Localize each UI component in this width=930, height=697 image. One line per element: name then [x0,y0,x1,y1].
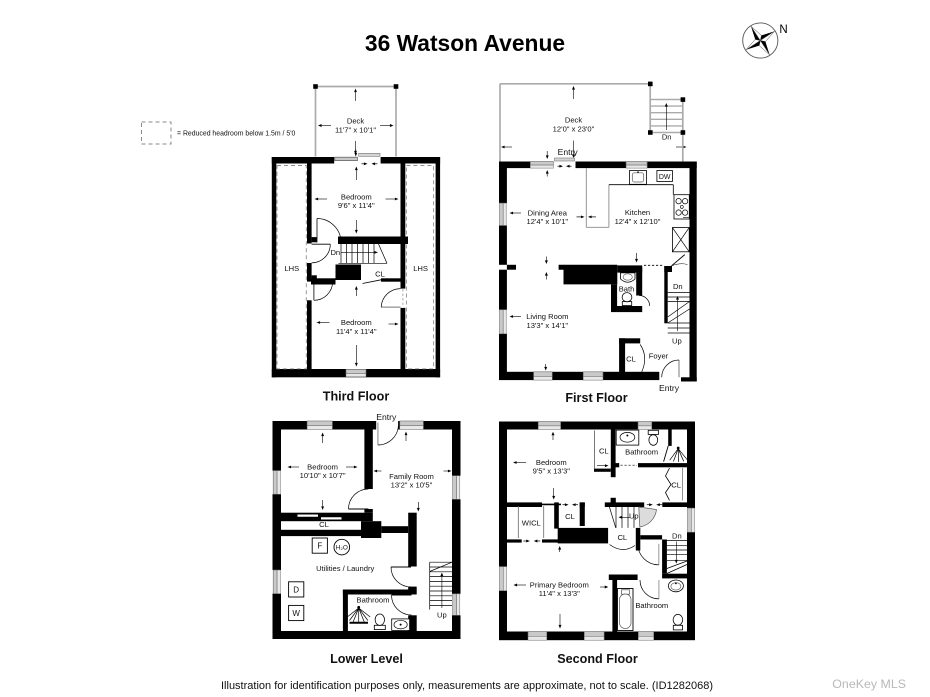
svg-text:DW: DW [659,174,671,181]
svg-text:D: D [293,586,299,595]
svg-text:11'7" x 10'1": 11'7" x 10'1" [335,126,376,135]
svg-text:CL: CL [626,355,636,364]
svg-text:CL: CL [375,270,385,279]
svg-text:N: N [779,24,787,36]
svg-text:H₂O: H₂O [336,545,348,552]
svg-text:Illustration for identificatio: Illustration for identification purposes… [221,680,713,692]
svg-text:Kitchen: Kitchen [625,208,650,217]
svg-text:F: F [317,542,322,551]
svg-text:11'4" x 11'4": 11'4" x 11'4" [336,327,377,336]
svg-text:OneKey MLS: OneKey MLS [832,677,906,691]
svg-text:Third Floor: Third Floor [323,390,390,404]
svg-text:Bath: Bath [619,285,635,294]
svg-text:Second Floor: Second Floor [557,652,638,666]
svg-text:12'4" x 12'10": 12'4" x 12'10" [615,217,661,226]
svg-text:9'5" x 13'3": 9'5" x 13'3" [533,466,571,475]
svg-text:Up: Up [629,512,639,521]
svg-text:Bathroom: Bathroom [625,448,658,457]
svg-text:CL: CL [565,512,575,521]
svg-text:Foyer: Foyer [649,352,669,361]
svg-text:12'4" x 10'1": 12'4" x 10'1" [526,217,568,226]
svg-text:Up: Up [672,337,682,346]
svg-text:Bedroom: Bedroom [307,463,338,472]
svg-text:WICL: WICL [522,518,541,527]
svg-text:Entry: Entry [659,383,680,393]
svg-text:CL: CL [319,520,329,529]
svg-text:Entry: Entry [376,412,397,422]
svg-text:Dn: Dn [672,532,682,541]
svg-text:Utilities / Laundry: Utilities / Laundry [316,564,374,573]
svg-text:Bedroom: Bedroom [341,318,372,327]
svg-text:Bathroom: Bathroom [635,601,668,610]
svg-text:Dining Area: Dining Area [528,209,568,218]
svg-text:Up: Up [437,611,447,620]
svg-text:Dn: Dn [673,282,683,291]
svg-text:Bathroom: Bathroom [357,595,390,604]
svg-text:LHS: LHS [284,264,299,273]
svg-text:Dn: Dn [330,248,340,257]
svg-text:= Reduced headroom below 1.5m: = Reduced headroom below 1.5m / 5'0 [177,131,296,138]
svg-text:13'2" x 10'5": 13'2" x 10'5" [391,481,433,490]
svg-text:Entry: Entry [558,147,579,157]
svg-text:First Floor: First Floor [565,391,627,405]
svg-text:Deck: Deck [347,117,365,126]
svg-text:CL: CL [671,481,681,490]
svg-text:12'0" x 23'0": 12'0" x 23'0" [553,125,595,134]
svg-text:Deck: Deck [565,116,583,125]
svg-text:W: W [292,609,300,618]
svg-text:Dn: Dn [662,133,672,142]
svg-text:9'6" x 11'4": 9'6" x 11'4" [338,201,375,210]
svg-text:CL: CL [599,446,609,455]
svg-text:Lower Level: Lower Level [330,652,403,666]
svg-text:LHS: LHS [413,264,428,273]
svg-text:36 Watson Avenue: 36 Watson Avenue [365,30,565,56]
svg-text:CL: CL [617,533,627,542]
svg-text:Living Room: Living Room [526,312,568,321]
svg-text:11'4" x 13'3": 11'4" x 13'3" [539,589,580,598]
svg-text:13'3" x 14'1": 13'3" x 14'1" [526,321,568,330]
svg-text:10'10" x 10'7": 10'10" x 10'7" [300,471,346,480]
